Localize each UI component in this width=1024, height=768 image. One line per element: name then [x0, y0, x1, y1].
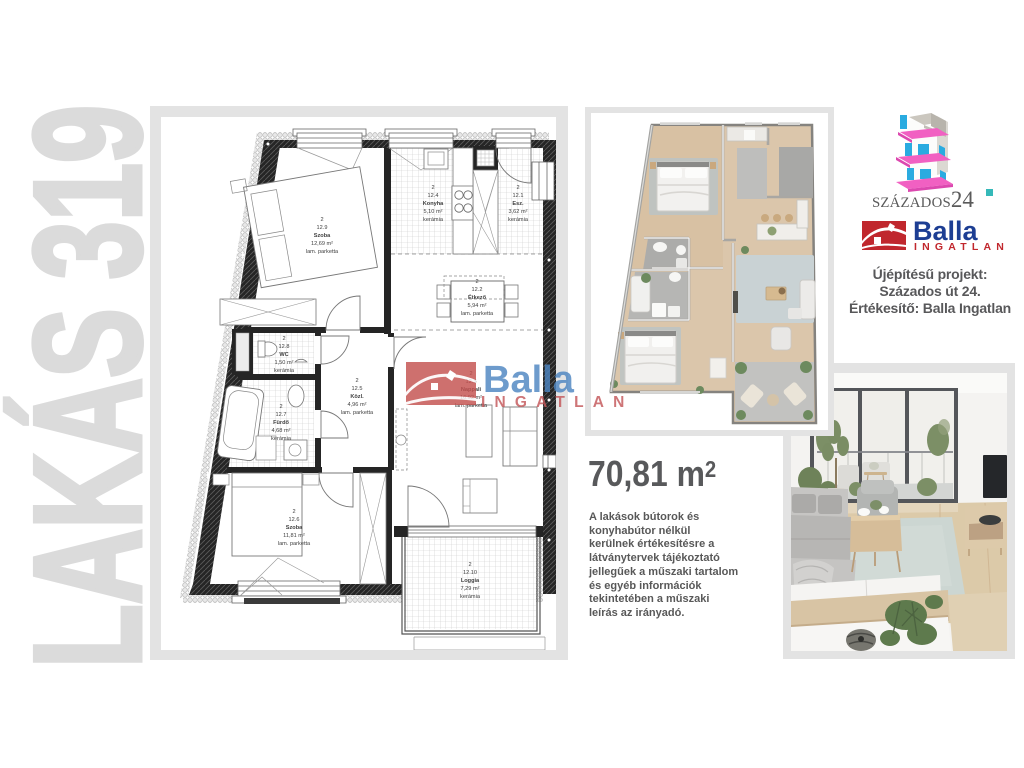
- svg-text:2: 2: [431, 185, 434, 191]
- svg-text:12.8: 12.8: [279, 344, 290, 350]
- svg-text:lam. parketta: lam. parketta: [461, 311, 494, 317]
- svg-text:2: 2: [292, 509, 295, 515]
- svg-text:12.9: 12.9: [317, 225, 328, 231]
- svg-text:Étkező: Étkező: [468, 293, 487, 301]
- svg-text:12.10: 12.10: [463, 570, 477, 576]
- svg-text:12.4: 12.4: [428, 193, 439, 199]
- svg-text:2: 2: [468, 562, 471, 568]
- svg-text:Közl.: Közl.: [350, 394, 364, 400]
- svg-text:kerámia: kerámia: [460, 594, 481, 600]
- svg-text:5,94 m²: 5,94 m²: [468, 303, 487, 309]
- svg-text:2: 2: [475, 279, 478, 285]
- svg-text:kerámia: kerámia: [271, 436, 292, 442]
- svg-text:4,68 m²: 4,68 m²: [272, 428, 291, 434]
- svg-text:4,96 m²: 4,96 m²: [348, 402, 367, 408]
- svg-text:Szoba: Szoba: [286, 525, 303, 531]
- svg-text:INGATLAN: INGATLAN: [914, 241, 1008, 253]
- svg-text:2: 2: [279, 404, 282, 410]
- svg-text:11,81 m²: 11,81 m²: [283, 533, 305, 539]
- svg-text:12.1: 12.1: [513, 193, 524, 199]
- svg-text:Konyha: Konyha: [423, 201, 444, 207]
- svg-text:7,29 m²: 7,29 m²: [461, 586, 480, 592]
- svg-text:3,62 m²: 3,62 m²: [509, 209, 528, 215]
- svg-text:Esz.: Esz.: [512, 201, 524, 207]
- svg-text:2: 2: [282, 336, 285, 342]
- svg-text:kerámia: kerámia: [274, 368, 295, 374]
- svg-text:lam. parketta: lam. parketta: [306, 249, 339, 255]
- svg-text:12,69 m²: 12,69 m²: [311, 241, 333, 247]
- svg-text:2: 2: [355, 378, 358, 384]
- svg-text:WC: WC: [279, 352, 288, 358]
- svg-text:12.2: 12.2: [472, 287, 483, 293]
- svg-text:12.6: 12.6: [289, 517, 300, 523]
- svg-text:kerámia: kerámia: [508, 217, 529, 223]
- svg-text:Szoba: Szoba: [314, 233, 331, 239]
- svg-text:12.5: 12.5: [352, 386, 363, 392]
- svg-text:kerámia: kerámia: [423, 217, 444, 223]
- svg-text:2: 2: [320, 217, 323, 223]
- svg-text:lam. parketta: lam. parketta: [341, 410, 374, 416]
- svg-text:1,50 m²: 1,50 m²: [275, 360, 294, 366]
- svg-text:LAKÁS 319: LAKÁS 319: [3, 105, 173, 668]
- svg-text:Fürdő: Fürdő: [273, 420, 289, 426]
- svg-text:2: 2: [516, 185, 519, 191]
- svg-text:5,10 m²: 5,10 m²: [424, 209, 443, 215]
- svg-text:lam. parketta: lam. parketta: [278, 541, 311, 547]
- svg-text:Loggia: Loggia: [461, 578, 480, 584]
- svg-text:INGATLAN: INGATLAN: [481, 394, 634, 410]
- svg-text:12.7: 12.7: [276, 412, 287, 418]
